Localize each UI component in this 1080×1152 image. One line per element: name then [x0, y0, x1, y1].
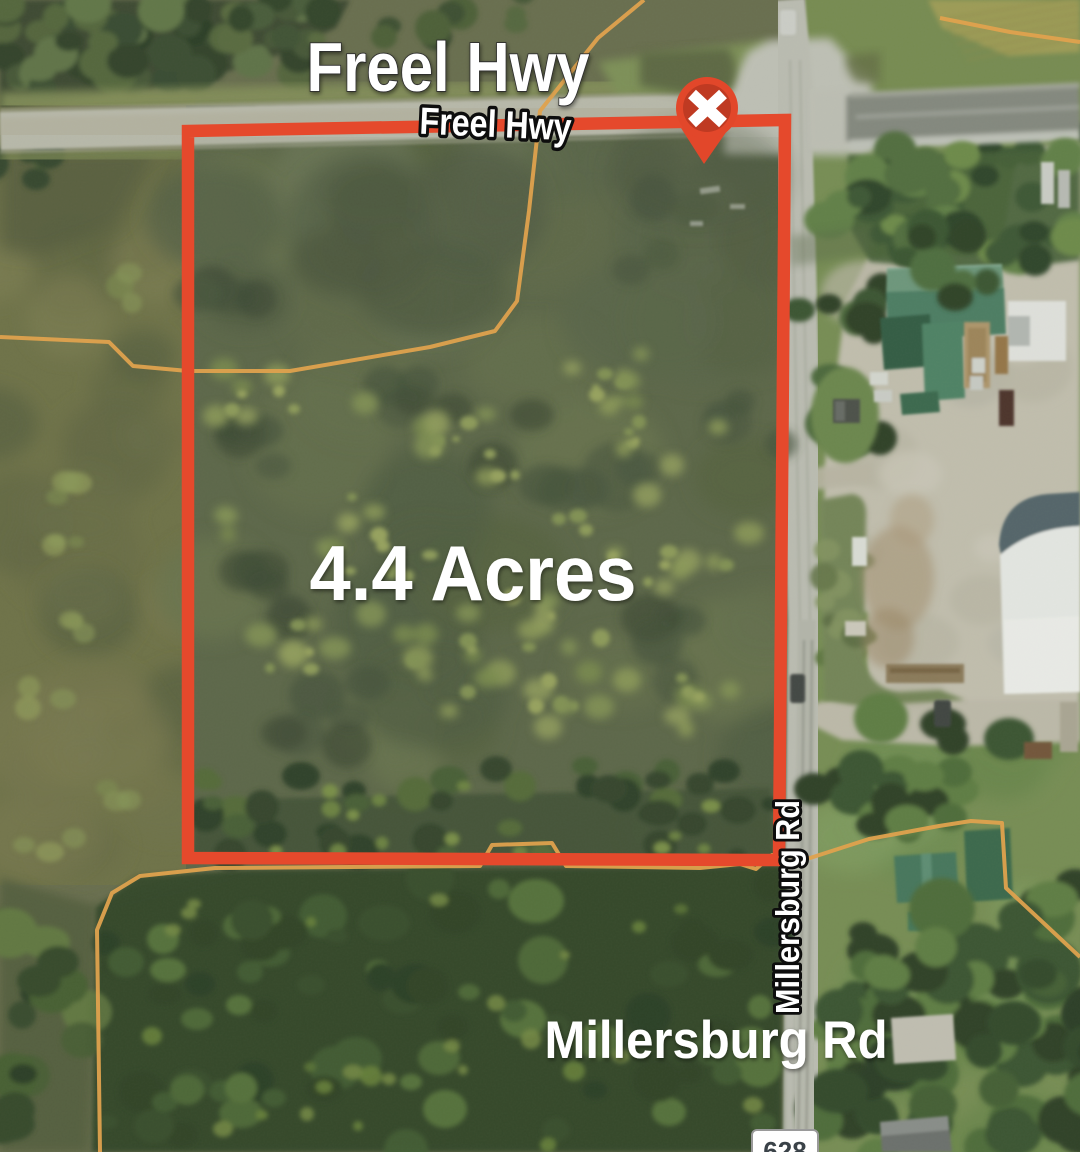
- svg-text:Millersburg Rd: Millersburg Rd: [769, 800, 806, 1014]
- svg-text:Millersburg Rd: Millersburg Rd: [545, 1011, 888, 1070]
- svg-text:Freel Hwy: Freel Hwy: [419, 101, 573, 150]
- svg-text:4.4 Acres: 4.4 Acres: [310, 529, 637, 617]
- svg-text:628: 628: [763, 1136, 806, 1152]
- svg-text:Freel Hwy: Freel Hwy: [307, 28, 590, 106]
